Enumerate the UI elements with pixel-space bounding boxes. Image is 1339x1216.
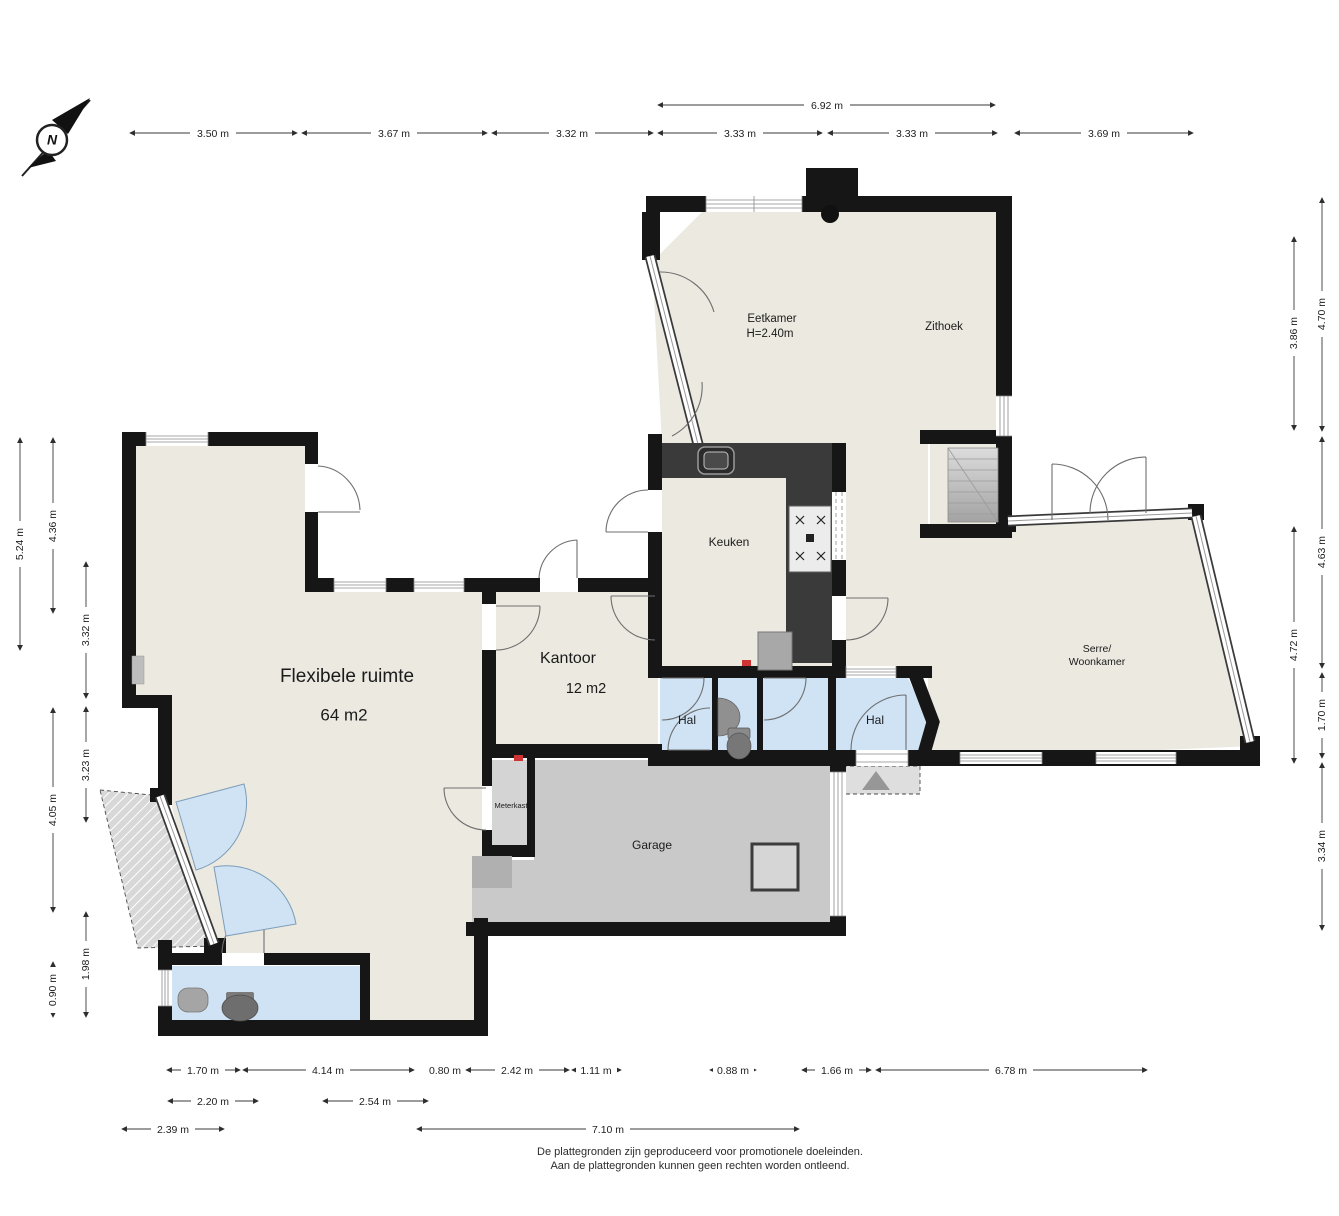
svg-text:3.67 m: 3.67 m	[378, 128, 410, 140]
dimension-top-5: 3.69 m	[1015, 126, 1193, 140]
dimension-top-1: 3.67 m	[302, 126, 487, 140]
stairs	[948, 448, 998, 522]
dimension-left-0: 5.24 m	[14, 438, 26, 650]
window	[1096, 752, 1176, 764]
svg-text:5.24 m: 5.24 m	[14, 528, 26, 560]
dimension-bottom3-1: 7.10 m	[417, 1122, 799, 1136]
dimension-left-6: 0.90 m	[47, 962, 59, 1017]
window	[846, 666, 896, 678]
disclaimer-line2: Aan de plattegronden kunnen geen rechten…	[550, 1160, 849, 1172]
door-gap	[222, 953, 264, 965]
dimension-top-0: 3.50 m	[130, 126, 297, 140]
wc-toilet	[727, 728, 751, 759]
dimension-top-overall: 6.92 m	[658, 98, 995, 112]
window	[414, 578, 464, 592]
kitchen-sink	[698, 447, 734, 474]
doucheruimte-floor	[762, 678, 829, 752]
svg-text:1.70 m: 1.70 m	[1316, 699, 1328, 731]
svg-text:4.14 m: 4.14 m	[312, 1065, 344, 1077]
serre-label-line1: Serre/	[1083, 643, 1112, 655]
dimension-bottom1-0: 1.70 m	[167, 1063, 240, 1077]
dimension-right-5: 3.34 m	[1316, 763, 1328, 930]
dimension-bottom2-0: 2.20 m	[168, 1094, 258, 1108]
floorplan-canvas: N Eetkamer H=2.40m Zithoek Keuken Kantoo…	[0, 0, 1339, 1216]
kantoor-floor	[490, 585, 658, 753]
eetkamer-height-label: H=2.40m	[747, 328, 794, 340]
dimension-right-1: 4.70 m	[1316, 198, 1328, 431]
dimension-bottom1-5: 0.88 m	[710, 1063, 756, 1077]
svg-text:3.32 m: 3.32 m	[556, 128, 588, 140]
kantoor-area-label: 12 m2	[566, 681, 606, 697]
window	[146, 432, 208, 446]
bath-toilet	[222, 992, 258, 1021]
window	[960, 752, 1042, 764]
svg-text:4.70 m: 4.70 m	[1316, 298, 1328, 330]
svg-text:0.90 m: 0.90 m	[47, 974, 59, 1006]
dimension-right-2: 4.63 m	[1316, 437, 1328, 668]
dimension-right-0: 3.86 m	[1288, 237, 1300, 430]
svg-text:2.39 m: 2.39 m	[157, 1124, 189, 1136]
window	[334, 578, 386, 592]
window	[158, 970, 172, 1006]
floorplan-page: N Eetkamer H=2.40m Zithoek Keuken Kantoo…	[0, 0, 1339, 1216]
svg-text:3.86 m: 3.86 m	[1288, 317, 1300, 349]
zithoek-label: Zithoek	[925, 321, 963, 333]
garage-label: Garage	[632, 838, 672, 852]
svg-text:0.80 m: 0.80 m	[429, 1065, 461, 1077]
svg-text:3.50 m: 3.50 m	[197, 128, 229, 140]
garage-door	[830, 772, 846, 916]
dimension-bottom1-4: 1.11 m	[572, 1063, 621, 1077]
flexibele-ruimte-area-label: 64 m2	[320, 705, 367, 724]
kantoor-label: Kantoor	[540, 650, 597, 667]
door-gap	[648, 490, 662, 532]
svg-text:1.66 m: 1.66 m	[821, 1065, 853, 1077]
garage-workbench	[752, 844, 798, 890]
svg-text:3.32 m: 3.32 m	[80, 614, 92, 646]
window	[706, 196, 802, 212]
svg-text:0.88 m: 0.88 m	[717, 1065, 749, 1077]
appliance	[758, 632, 792, 670]
svg-text:3.33 m: 3.33 m	[896, 128, 928, 140]
dimension-left-3: 3.23 m	[80, 707, 92, 822]
dimension-bottom1-7: 6.78 m	[876, 1063, 1147, 1077]
door-gap	[540, 578, 578, 592]
hal-east-label: Hal	[866, 713, 884, 727]
sliding-door-gap	[832, 492, 846, 560]
svg-text:7.10 m: 7.10 m	[592, 1124, 624, 1136]
eetkamer-label: Eetkamer	[747, 313, 796, 325]
svg-text:3.69 m: 3.69 m	[1088, 128, 1120, 140]
stove	[789, 506, 831, 572]
dimension-left-4: 4.05 m	[47, 708, 59, 912]
compass-n-label: N	[47, 132, 58, 148]
window	[996, 396, 1012, 436]
svg-text:2.42 m: 2.42 m	[501, 1065, 533, 1077]
svg-text:4.63 m: 4.63 m	[1316, 536, 1328, 568]
svg-text:6.78 m: 6.78 m	[995, 1065, 1027, 1077]
disclaimer-line1: De plattegronden zijn geproduceerd voor …	[537, 1146, 863, 1158]
dimension-bottom1-6: 1.66 m	[802, 1063, 871, 1077]
garage-block	[472, 856, 512, 888]
svg-text:6.92 m: 6.92 m	[811, 100, 843, 112]
meterkast-label: Meterkast	[495, 801, 529, 810]
svg-text:3.33 m: 3.33 m	[724, 128, 756, 140]
bath-sink	[178, 988, 208, 1012]
dimension-right-4: 1.70 m	[1316, 673, 1328, 758]
svg-text:4.72 m: 4.72 m	[1288, 629, 1300, 661]
svg-text:4.36 m: 4.36 m	[47, 510, 59, 542]
svg-text:1.11 m: 1.11 m	[580, 1065, 612, 1077]
porch	[836, 766, 920, 794]
dimension-bottom1-1: 4.14 m	[243, 1063, 414, 1077]
serre-label-line2: Woonkamer	[1069, 656, 1126, 668]
door-gap	[482, 604, 496, 650]
flexibele-ruimte-label: Flexibele ruimte	[280, 666, 414, 687]
dimension-right-3: 4.72 m	[1288, 527, 1300, 763]
disclaimer: De plattegronden zijn geproduceerd voor …	[537, 1146, 863, 1172]
dimension-left-2: 3.32 m	[80, 562, 92, 698]
svg-text:4.05 m: 4.05 m	[47, 794, 59, 826]
smoke-detector	[514, 755, 523, 761]
dimension-top-3: 3.33 m	[658, 126, 822, 140]
flue-dot	[821, 205, 839, 223]
svg-text:3.34 m: 3.34 m	[1316, 830, 1328, 862]
door-gap	[482, 786, 492, 830]
dimension-bottom1-3: 2.42 m	[466, 1063, 569, 1077]
dimension-bottom2-1: 2.54 m	[323, 1094, 428, 1108]
svg-text:2.54 m: 2.54 m	[359, 1096, 391, 1108]
door-gap	[305, 464, 318, 512]
smoke-detector	[742, 660, 751, 666]
door-gap	[832, 596, 846, 640]
keuken-label: Keuken	[709, 535, 750, 549]
dimension-top-4: 3.33 m	[828, 126, 997, 140]
front-door-gap	[856, 750, 908, 766]
radiator	[132, 656, 144, 684]
dimension-bottom3-0: 2.39 m	[122, 1122, 224, 1136]
dimension-top-2: 3.32 m	[492, 126, 653, 140]
dimension-left-5: 1.98 m	[80, 912, 92, 1017]
svg-text:1.70 m: 1.70 m	[187, 1065, 219, 1077]
svg-text:1.98 m: 1.98 m	[80, 948, 92, 980]
svg-text:3.23 m: 3.23 m	[80, 749, 92, 781]
dimension-left-1: 4.36 m	[47, 438, 59, 613]
hal-west-label: Hal	[678, 713, 696, 727]
svg-text:2.20 m: 2.20 m	[197, 1096, 229, 1108]
compass-north-icon: N	[22, 98, 90, 176]
dimension-bottom1-2: 0.80 m	[425, 1063, 466, 1077]
room-floors	[130, 212, 1254, 1026]
